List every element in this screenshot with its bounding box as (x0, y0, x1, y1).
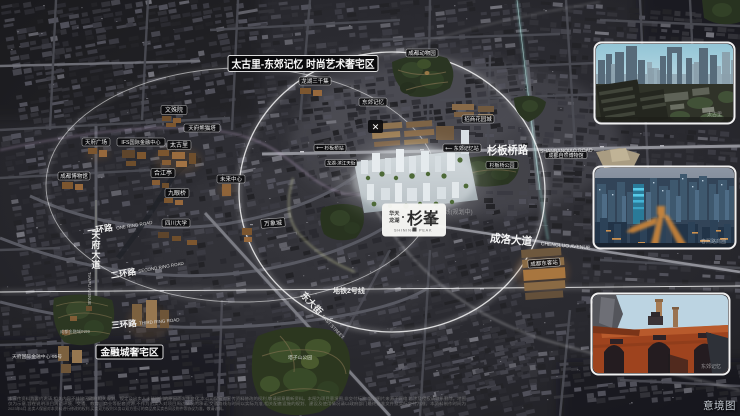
svg-text:道: 道 (91, 259, 100, 270)
svg-text:合江亭: 合江亭 (154, 169, 172, 177)
svg-text:大: 大 (91, 249, 100, 260)
svg-text:杉峯: 杉峯 (407, 209, 440, 228)
svg-text:⟵ 杉板桥站: ⟵ 杉板桥站 (316, 145, 344, 152)
svg-text:2023年6月,出卖人保留对本资料进行修改的权利,买卖双方权: 2023年6月,出卖人保留对本资料进行修改的权利,买卖双方权利义务以双方签订的商… (8, 406, 226, 411)
svg-text:春熙路商圈: 春熙路商圈 (701, 238, 726, 245)
svg-text:天: 天 (91, 230, 101, 240)
svg-text:天府广场: 天府广场 (85, 138, 108, 146)
svg-text:SHINING: SHINING (394, 229, 415, 233)
svg-text:府: 府 (91, 239, 100, 250)
svg-text:天府国际金融中心·95号: 天府国际金融中心·95号 (12, 353, 62, 360)
svg-text:九眼桥: 九眼桥 (168, 189, 186, 197)
svg-text:意境图: 意境图 (703, 399, 736, 412)
svg-text:仅为示意,旨在说明项目周边环境、交通、教育、商业等配套资源,: 仅为示意,旨在说明项目周边环境、交通、教育、商业等配套资源,不作为出卖人对项目周… (8, 401, 466, 406)
svg-text:龙湖: 龙湖 (388, 216, 399, 224)
svg-text:金融城奢宅区: 金融城奢宅区 (99, 346, 159, 358)
svg-text:杉板桥公园: 杉板桥公园 (489, 162, 514, 169)
svg-text:⟵ 东郊记忆站: ⟵ 东郊记忆站 (445, 145, 479, 152)
svg-text:太古里: 太古里 (707, 111, 722, 118)
svg-text:成都博物馆: 成都博物馆 (60, 172, 88, 180)
svg-text:塔子山公园: 塔子山公园 (288, 354, 312, 361)
svg-text:TIANFU AVENUE: TIANFU AVENUE (87, 272, 92, 305)
svg-text:太古里: 太古里 (170, 141, 188, 149)
svg-text:四川大学: 四川大学 (165, 219, 188, 227)
svg-text:杉板桥路: 杉板桥路 (487, 143, 529, 158)
svg-text:未来中心: 未来中心 (220, 175, 243, 183)
svg-text:东郊记忆: 东郊记忆 (362, 98, 385, 106)
svg-text:PEAK: PEAK (419, 229, 432, 233)
svg-text:招商花园城: 招商花园城 (464, 115, 492, 123)
svg-text:✕: ✕ (372, 122, 380, 132)
svg-text:龙湖·滨江天街: 龙湖·滨江天街 (327, 160, 356, 167)
svg-text:成都金融城IN99: 成都金融城IN99 (60, 328, 90, 335)
svg-text:天府熊猫塔: 天府熊猫塔 (188, 124, 216, 132)
svg-text:华天: 华天 (389, 209, 400, 217)
svg-text:SHANBANQIAO ROAD ——: SHANBANQIAO ROAD —— (540, 148, 604, 155)
svg-text:成都动物园: 成都动物园 (408, 49, 436, 57)
svg-text:文殊院: 文殊院 (165, 106, 183, 114)
svg-text:地铁2号线: 地铁2号线 (333, 286, 365, 295)
svg-text:IFS国际金融中心: IFS国际金融中心 (121, 138, 160, 146)
svg-text:龙湖三千集: 龙湖三千集 (301, 77, 329, 85)
svg-text:本宣传资料为要约邀请,相关内容不排除因政府相关规划、规定及出: 本宣传资料为要约邀请,相关内容不排除因政府相关规划、规定及出卖人未能控制的原因而… (8, 396, 466, 401)
svg-text:太古里-东郊记忆 时尚艺术奢宅区: 太古里-东郊记忆 时尚艺术奢宅区 (231, 57, 375, 70)
svg-text:东郊记忆: 东郊记忆 (701, 363, 721, 370)
